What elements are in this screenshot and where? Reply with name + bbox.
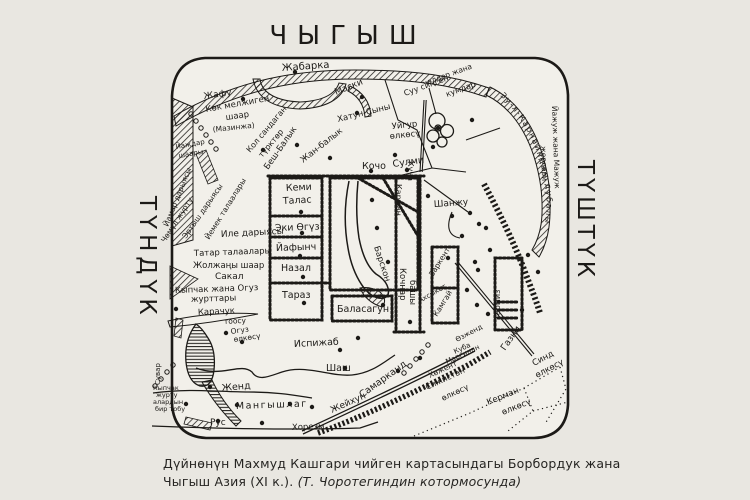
city-dot [369,169,373,173]
map-label-tarmiz: Тармиз [493,290,502,321]
map-label-kemi: Кеми [286,182,312,194]
small-bar [174,318,183,338]
city-dot [446,256,450,260]
map-label-sakal: Сакал [215,272,244,282]
city-dot [301,275,305,279]
city-dot [224,331,228,335]
city-dot [375,226,379,230]
city-dot [208,385,212,389]
caption-line1: Дүйнөнүн Махмуд Кашгари чийген картасынд… [163,456,620,471]
city-dot [436,126,440,130]
city-dot [426,194,430,198]
city-dot [536,270,540,274]
city-dot [396,369,400,373]
map-label-yafynch: Йафынч [276,241,317,254]
city-dot [477,222,481,226]
city-dot [174,307,178,311]
caption-translator: (Т. Чоротегиндин котормосунда) [298,474,522,489]
city-dot [465,288,469,292]
city-dot [476,268,480,272]
city-dot [386,260,390,264]
city-dot [298,254,302,258]
city-dot [293,70,297,74]
city-dot [520,308,524,312]
city-dot [338,348,342,352]
city-dot [261,148,265,152]
city-dot [393,153,397,157]
city-dot [300,231,304,235]
map-label-kypchak-small-4: бир тобу [155,405,185,413]
city-dot [288,402,292,406]
map-label-kochnar: Кочңар [397,268,407,300]
city-dot [216,419,220,423]
city-dot [370,198,374,202]
city-dot [405,168,409,172]
city-dot [184,402,188,406]
city-dot [460,234,464,238]
city-dot [310,405,314,409]
city-dot [470,118,474,122]
city-dot [328,156,332,160]
map-label-ispijab: Испижаб [294,337,340,350]
city-dot [473,260,477,264]
city-dot [240,340,244,344]
city-dot [486,312,490,316]
small-circle-marker [165,370,169,374]
city-dot [343,366,347,370]
map-label-karman: Карман [394,184,403,216]
compass-east: ЧЫГЫШ [269,21,426,51]
map-label-taraz: Тараз [281,290,311,301]
compass-south: ТҮШТҮК [572,159,598,281]
city-dot [302,301,306,305]
city-dot [408,320,412,324]
map-label-nazal: Назал [281,263,311,274]
compass-north: ТҮНДҮК [134,195,160,320]
map-label-joljany-shaar: Жолжаңы шаар [193,261,264,271]
scanned-map-page: Зу-л-Карнайндын дубалы ЧЫГЫШ ТҮНДҮК ТҮШТ… [0,0,750,500]
city-dot [295,143,299,147]
city-dot [355,111,359,115]
map-label-khorezm: Хорезм [292,422,325,433]
city-dot [360,95,364,99]
city-dot [241,97,245,101]
map-canvas: Зу-л-Карнайндын дубалы ЧЫГЫШ ТҮНДҮК ТҮШТ… [0,0,750,500]
map-label-bashy: башы [407,280,417,305]
caption-line2: Чыгыш Азия (XI к.). [163,474,293,489]
map-label-talas: Талас [282,195,312,208]
city-dot [475,303,479,307]
city-dot [468,211,472,215]
city-dot [488,248,492,252]
map-label-kocho: Кочо [362,161,386,172]
city-dot [484,226,488,230]
map-caption: Дүйнөнүн Махмуд Кашгари чийген картасынд… [163,455,643,491]
city-dot [450,214,454,218]
city-dot [235,403,239,407]
city-dot [526,253,530,257]
city-dot [381,303,385,307]
city-dot [431,145,435,149]
map-label-yajuj-2: жерлери [539,146,549,182]
city-dot [356,336,360,340]
map-label-kypchak-2: журттары [191,293,237,305]
city-dot [260,421,264,425]
city-dot [299,210,303,214]
